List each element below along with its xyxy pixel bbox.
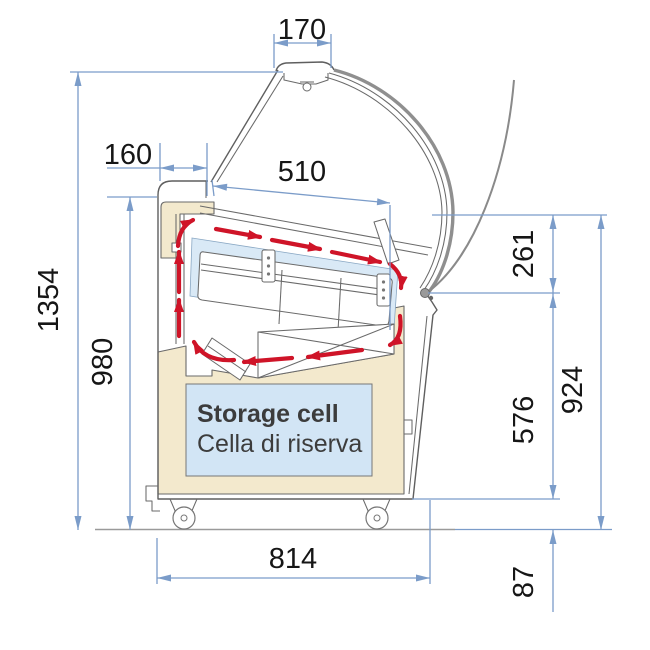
- canopy: [276, 62, 334, 71]
- glass-open-position-arc: [428, 80, 514, 292]
- dim-base-width: 814: [269, 543, 317, 575]
- lamp-icon: [300, 82, 314, 91]
- caster-right: [363, 499, 390, 529]
- dim-base-clearance: 87: [508, 566, 540, 598]
- dim-opening-width: 510: [278, 156, 326, 188]
- dim-front-height: 924: [557, 366, 589, 414]
- drawing-canvas: Storage cell Cella di riserva: [0, 0, 650, 650]
- storage-cell-subtitle: Cella di riserva: [197, 430, 362, 458]
- caster-left: [170, 499, 197, 529]
- pan-latch-right: [377, 274, 390, 306]
- airflow-right-2: [272, 240, 320, 249]
- airflow-right-1: [216, 229, 260, 237]
- dim-lower-front: 576: [508, 396, 540, 444]
- front-latch-detail: [404, 420, 412, 434]
- dim-worktop-height: 980: [87, 338, 119, 386]
- casters: [170, 499, 390, 529]
- dim-overall-height: 1354: [33, 268, 65, 333]
- dimension-lines: [70, 34, 612, 612]
- display-well: [190, 238, 398, 331]
- storage-cell-title: Storage cell: [197, 400, 339, 428]
- rear-slant-panel: [211, 70, 278, 182]
- pan-latch-left: [262, 250, 275, 282]
- dim-rear-depth: 160: [104, 139, 152, 171]
- dim-upper-front: 261: [508, 230, 540, 278]
- dim-canopy-width: 170: [278, 14, 326, 46]
- dim-line-opening-width: [213, 186, 390, 203]
- technical-drawing: Storage cell Cella di riserva: [0, 0, 650, 650]
